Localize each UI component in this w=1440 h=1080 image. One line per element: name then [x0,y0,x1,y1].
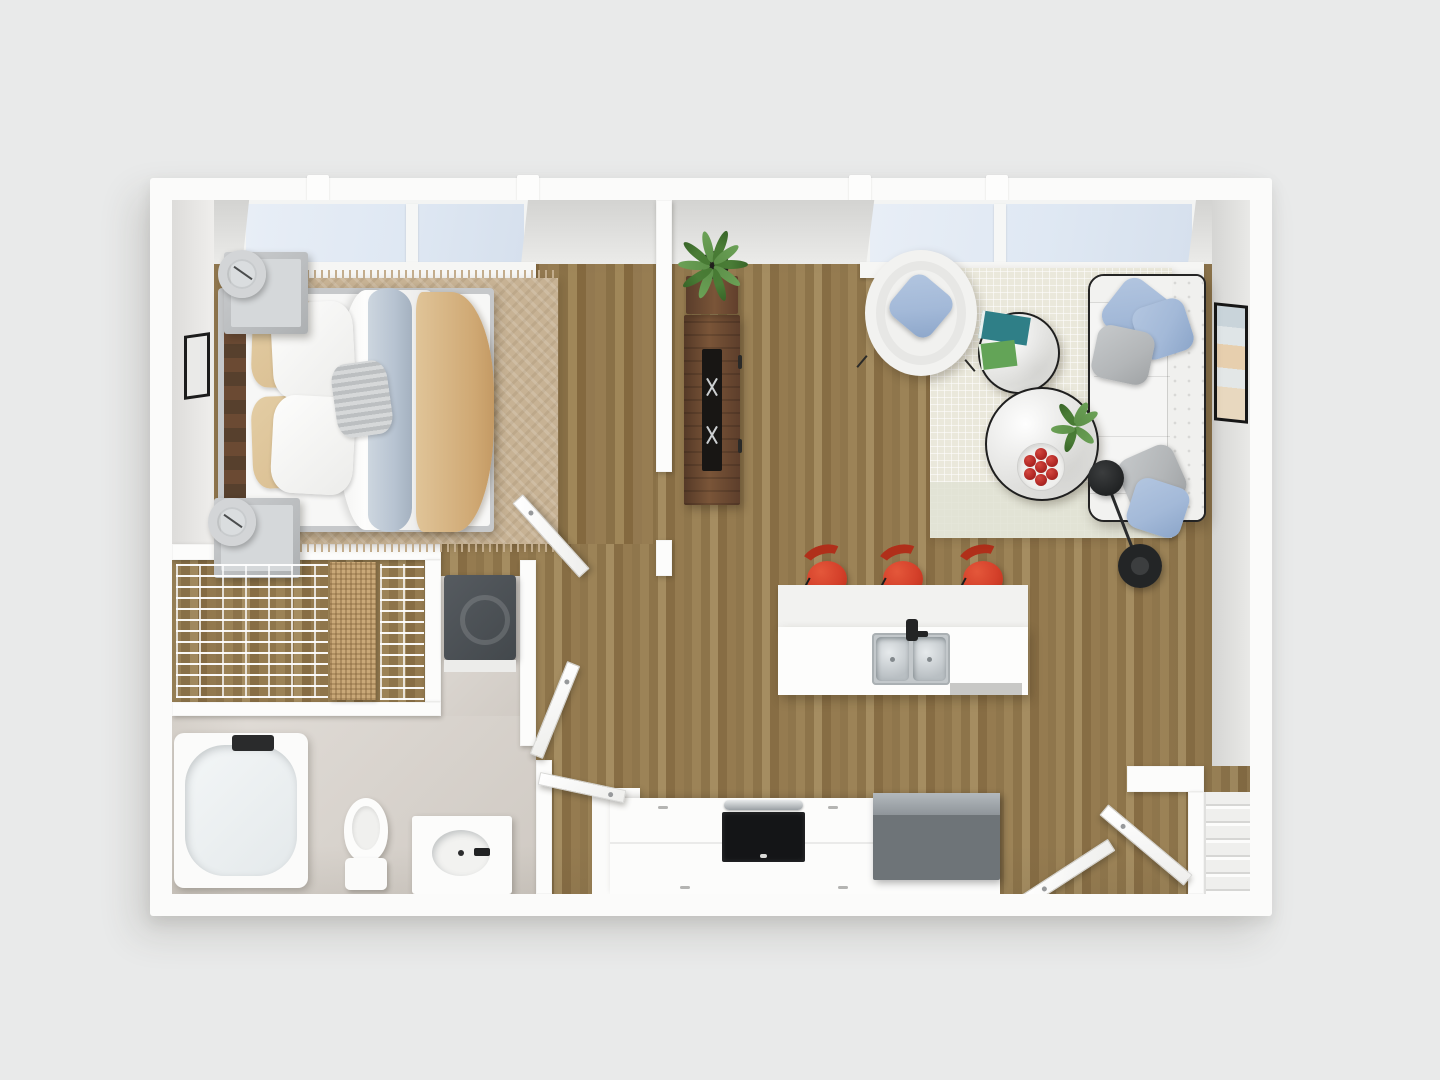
washer-pedestal [444,660,516,672]
fruit [1035,461,1047,473]
closet-wire-shelving [176,564,328,698]
entry-closet-shelving [1204,792,1250,894]
wall-closet-east [425,560,441,702]
window-mullion [994,204,1006,262]
fruit [1046,455,1058,467]
toilet-tank [345,858,387,890]
vanity-sink [412,816,512,894]
floor-plan-render [0,0,1440,1080]
door-knob [608,792,614,798]
console-handle [738,355,742,369]
door-knob [1041,885,1048,892]
pillow-striped [329,358,395,439]
tub-faucet-icon [232,735,274,751]
comforter [416,292,494,532]
cabinet-handle [828,806,838,809]
island-bar-top [778,585,1028,629]
oven-handle [724,800,803,810]
nightstand [224,252,308,334]
wall-entry-vestibule [1127,766,1204,792]
fruit [1035,474,1047,486]
wall-closet-bathroom [172,702,441,716]
tv [702,349,722,471]
kitchen-island [778,585,1028,695]
framed-art [1214,302,1248,424]
toilet-seat [352,806,380,850]
cabinet-handle [680,886,690,889]
vanity-faucet-icon [474,848,490,856]
sink-drain [927,657,932,662]
washer-dryer [444,575,516,660]
side-table [978,312,1060,394]
fruit [1024,468,1036,480]
fruit [1046,468,1058,480]
floor-lamp-base [1118,544,1162,588]
fruit [1035,448,1047,460]
wall-bedroom-east-stub [656,540,672,576]
rug-fringe [300,270,558,278]
potted-plant [678,228,750,300]
refrigerator [873,793,1000,880]
console-handle [738,439,742,453]
right-wall-face [1212,200,1250,766]
wall-laundry-east [520,560,536,746]
cabinet-handle [838,886,848,889]
rug-fringe [300,544,558,552]
bedroom-wall-art [184,332,210,400]
tub-basin [185,745,297,876]
dishwasher-front [950,683,1022,695]
wall-entry-closet [1188,792,1204,894]
table-plant [1049,397,1101,453]
washer-door-ring [460,595,510,645]
apartment-outline [150,178,1272,916]
closet-wire-shelving [380,564,424,700]
storage-baskets [330,562,376,700]
refrigerator-top [873,793,1000,815]
sink-drain [890,657,895,662]
media-console [684,315,740,505]
sink-faucet-icon [906,631,928,637]
cooktop [722,812,805,862]
plant-leaf [1051,425,1075,434]
bathtub [174,733,308,888]
door-knob [527,509,534,516]
floor-lamp-head [1088,460,1124,496]
toilet [340,798,392,892]
sink-faucet-icon [906,619,918,641]
coffee-table [985,387,1099,501]
door-knob [564,679,571,686]
wall-bedroom-east [656,200,672,472]
cooktop-control [760,854,767,858]
cushion-seam [1094,436,1170,437]
vanity-drain [458,850,464,856]
apartment-interior [172,200,1250,894]
cabinet-handle [658,806,668,809]
door-knob [1120,823,1127,830]
armchair [865,250,977,376]
magazine [979,340,1018,370]
window-mullion [406,204,418,262]
